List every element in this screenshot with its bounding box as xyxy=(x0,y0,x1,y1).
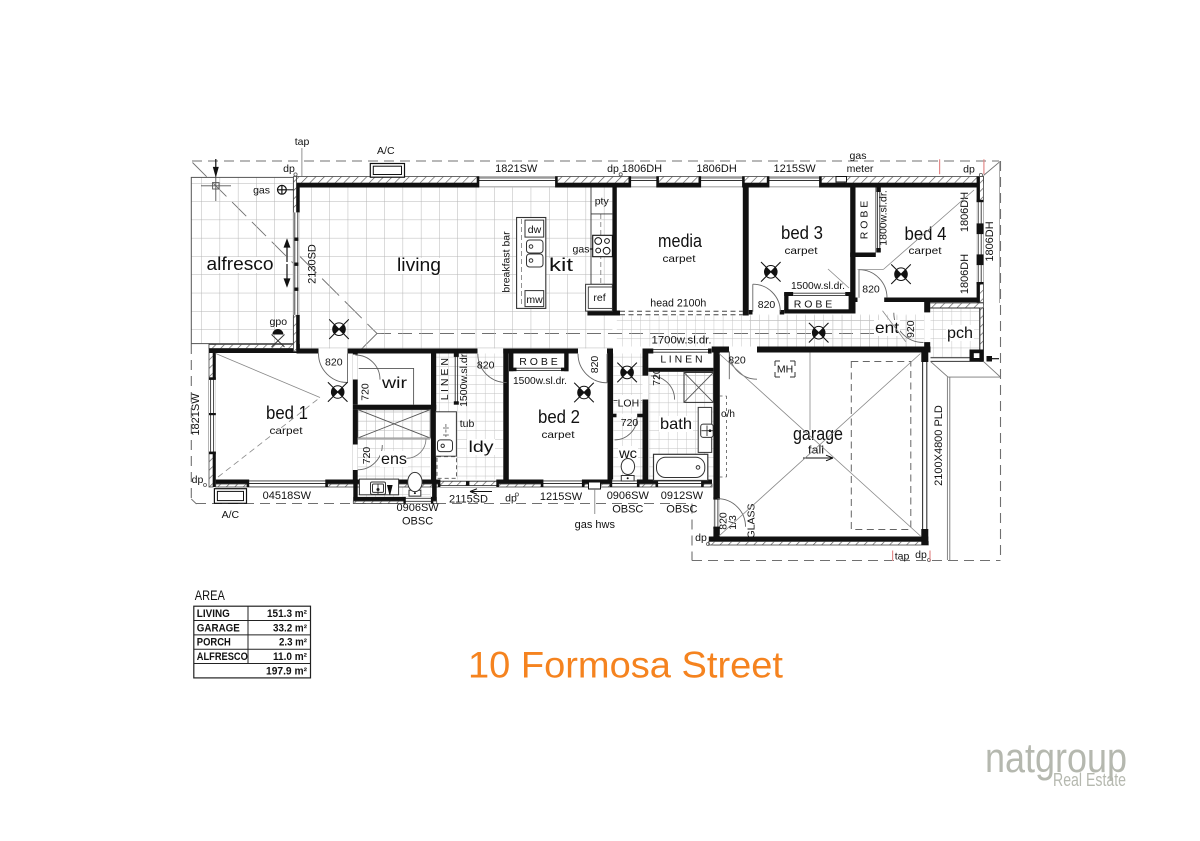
svg-text:1806DH: 1806DH xyxy=(696,163,736,175)
svg-text:1806DH: 1806DH xyxy=(622,163,662,175)
svg-text:mw: mw xyxy=(526,294,543,306)
svg-text:carpet: carpet xyxy=(663,253,696,265)
svg-text:OBSC: OBSC xyxy=(666,504,697,516)
svg-text:Real Estate: Real Estate xyxy=(1053,770,1126,790)
svg-text:head 2100h: head 2100h xyxy=(650,298,706,310)
svg-text:OBSC: OBSC xyxy=(402,516,433,528)
svg-text:LOH: LOH xyxy=(618,398,640,410)
svg-text:bed 3: bed 3 xyxy=(781,223,823,243)
svg-text:197.9 m²: 197.9 m² xyxy=(266,665,307,677)
svg-text:dp: dp xyxy=(283,163,295,175)
svg-text:dp: dp xyxy=(192,474,204,486)
svg-text:gas hws: gas hws xyxy=(575,519,616,531)
svg-text:820: 820 xyxy=(589,356,601,374)
svg-text:dp: dp xyxy=(915,549,927,561)
svg-text:1821SW: 1821SW xyxy=(190,393,202,436)
svg-text:LIVING: LIVING xyxy=(197,608,230,620)
svg-text:tap: tap xyxy=(895,551,910,563)
svg-text:1215SW: 1215SW xyxy=(540,491,583,503)
svg-text:11.0 m²: 11.0 m² xyxy=(273,651,307,663)
svg-text:0912SW: 0912SW xyxy=(661,490,704,502)
svg-text:pty: pty xyxy=(595,196,610,208)
svg-text:kit: kit xyxy=(549,255,573,275)
svg-text:04518SW: 04518SW xyxy=(263,490,312,502)
svg-text:L I N E N: L I N E N xyxy=(660,354,702,366)
svg-text:MH: MH xyxy=(777,364,793,376)
svg-text:10 Formosa Street: 10 Formosa Street xyxy=(468,644,784,686)
svg-text:breakfast bar: breakfast bar xyxy=(501,231,513,293)
svg-text:L I N E N: L I N E N xyxy=(439,358,451,400)
svg-text:wir: wir xyxy=(381,375,408,392)
svg-text:ldy: ldy xyxy=(469,439,494,456)
svg-text:1806DH: 1806DH xyxy=(984,221,996,261)
svg-text:1215SW: 1215SW xyxy=(773,163,816,175)
svg-text:1806DH: 1806DH xyxy=(959,254,971,294)
svg-text:820: 820 xyxy=(325,357,343,369)
svg-text:meter: meter xyxy=(847,163,874,175)
svg-text:o/h: o/h xyxy=(721,409,735,420)
svg-text:bed 4: bed 4 xyxy=(905,224,947,244)
svg-text:dp: dp xyxy=(695,532,707,544)
svg-text:1800w.sl.dr.: 1800w.sl.dr. xyxy=(878,190,890,245)
svg-text:920: 920 xyxy=(905,320,917,338)
svg-text:bed 1: bed 1 xyxy=(266,403,308,423)
svg-text:A/C: A/C xyxy=(377,145,395,157)
svg-text:GLASS: GLASS xyxy=(746,503,758,538)
svg-text:ref: ref xyxy=(593,292,605,304)
svg-text:820: 820 xyxy=(862,284,880,296)
svg-text:carpet: carpet xyxy=(270,425,303,437)
svg-text:A/C: A/C xyxy=(222,509,240,521)
svg-text:gas: gas xyxy=(850,150,867,162)
svg-text:dp: dp xyxy=(607,163,619,175)
svg-text:1/3: 1/3 xyxy=(727,515,739,530)
svg-text:R O B E: R O B E xyxy=(794,299,833,311)
svg-text:dp: dp xyxy=(963,164,975,176)
svg-text:gpo: gpo xyxy=(270,316,288,328)
svg-text:R O B E: R O B E xyxy=(858,201,870,240)
svg-text:carpet: carpet xyxy=(785,245,818,257)
svg-text:2.3 m²: 2.3 m² xyxy=(279,637,307,649)
svg-text:33.2 m²: 33.2 m² xyxy=(273,622,307,634)
svg-text:AREA: AREA xyxy=(195,588,225,603)
svg-text:820: 820 xyxy=(758,299,776,311)
svg-text:720: 720 xyxy=(360,383,372,401)
svg-text:2115SD: 2115SD xyxy=(449,494,488,506)
svg-text:1500w.sl.dr.: 1500w.sl.dr. xyxy=(791,280,845,292)
svg-text:2100X4800 PLD: 2100X4800 PLD xyxy=(933,405,945,486)
svg-text:ens: ens xyxy=(381,451,407,468)
svg-text:media: media xyxy=(658,231,703,251)
svg-text:R O B E: R O B E xyxy=(519,356,558,368)
svg-text:1500w.sl.dr.: 1500w.sl.dr. xyxy=(513,375,567,387)
svg-text:tap: tap xyxy=(295,136,310,148)
svg-text:720: 720 xyxy=(361,447,373,465)
svg-text:ALFRESCO: ALFRESCO xyxy=(197,651,248,663)
svg-text:carpet: carpet xyxy=(542,429,575,441)
svg-text:bath: bath xyxy=(660,416,692,433)
svg-text:carpet: carpet xyxy=(909,245,942,257)
svg-text:0906SW: 0906SW xyxy=(607,490,650,502)
svg-text:1700w.sl.dr.: 1700w.sl.dr. xyxy=(652,335,712,347)
svg-text:1821SW: 1821SW xyxy=(495,163,538,175)
svg-text:living: living xyxy=(397,255,441,275)
svg-text:1500w.sl.dr.: 1500w.sl.dr. xyxy=(458,351,470,406)
svg-text:720: 720 xyxy=(621,417,639,429)
svg-text:820: 820 xyxy=(477,360,495,372)
svg-text:alfresco: alfresco xyxy=(207,254,274,274)
svg-text:gas: gas xyxy=(253,185,270,197)
svg-text:151.3 m²: 151.3 m² xyxy=(267,608,307,620)
svg-text:pch: pch xyxy=(947,325,973,342)
svg-text:dw: dw xyxy=(528,224,542,236)
svg-text:tub: tub xyxy=(460,418,475,430)
svg-text:PORCH: PORCH xyxy=(197,637,231,649)
svg-text:bed 2: bed 2 xyxy=(538,407,580,427)
svg-text:720: 720 xyxy=(651,368,663,386)
svg-text:gas: gas xyxy=(573,244,590,256)
svg-text:OBSC: OBSC xyxy=(612,504,643,516)
svg-text:GARAGE: GARAGE xyxy=(197,622,240,634)
svg-text:0906SW: 0906SW xyxy=(396,502,439,514)
svg-text:2130SD: 2130SD xyxy=(307,244,319,284)
